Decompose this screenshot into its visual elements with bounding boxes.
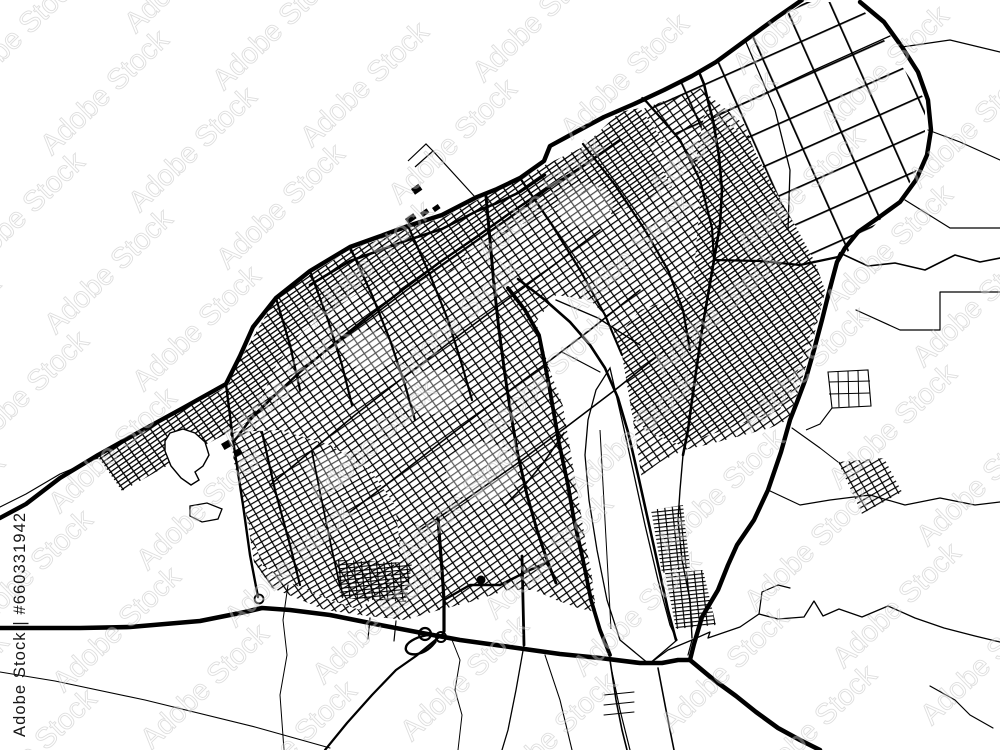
svg-text:Adobe Stock | #660331942: Adobe Stock | #660331942 (11, 512, 29, 737)
